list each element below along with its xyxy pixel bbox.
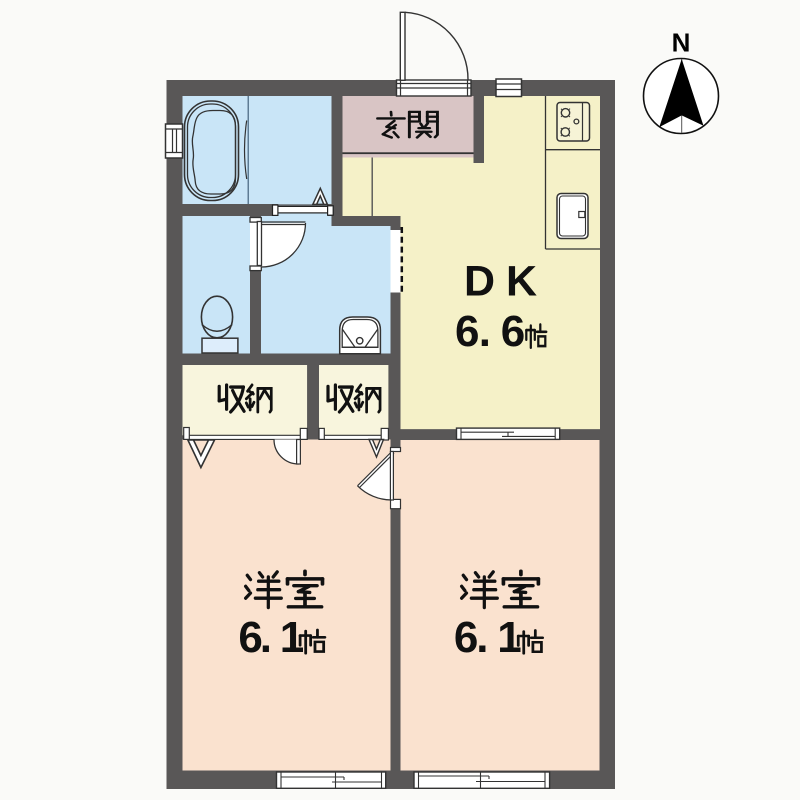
svg-text:N: N <box>672 28 691 58</box>
svg-text:.: . <box>260 613 272 662</box>
svg-text:6: 6 <box>501 307 525 356</box>
svg-text:D: D <box>464 258 495 306</box>
svg-text:6: 6 <box>455 307 479 356</box>
svg-text:.: . <box>479 307 491 356</box>
svg-text:.: . <box>476 613 488 662</box>
svg-text:K: K <box>506 258 537 306</box>
svg-text:6: 6 <box>454 613 478 662</box>
